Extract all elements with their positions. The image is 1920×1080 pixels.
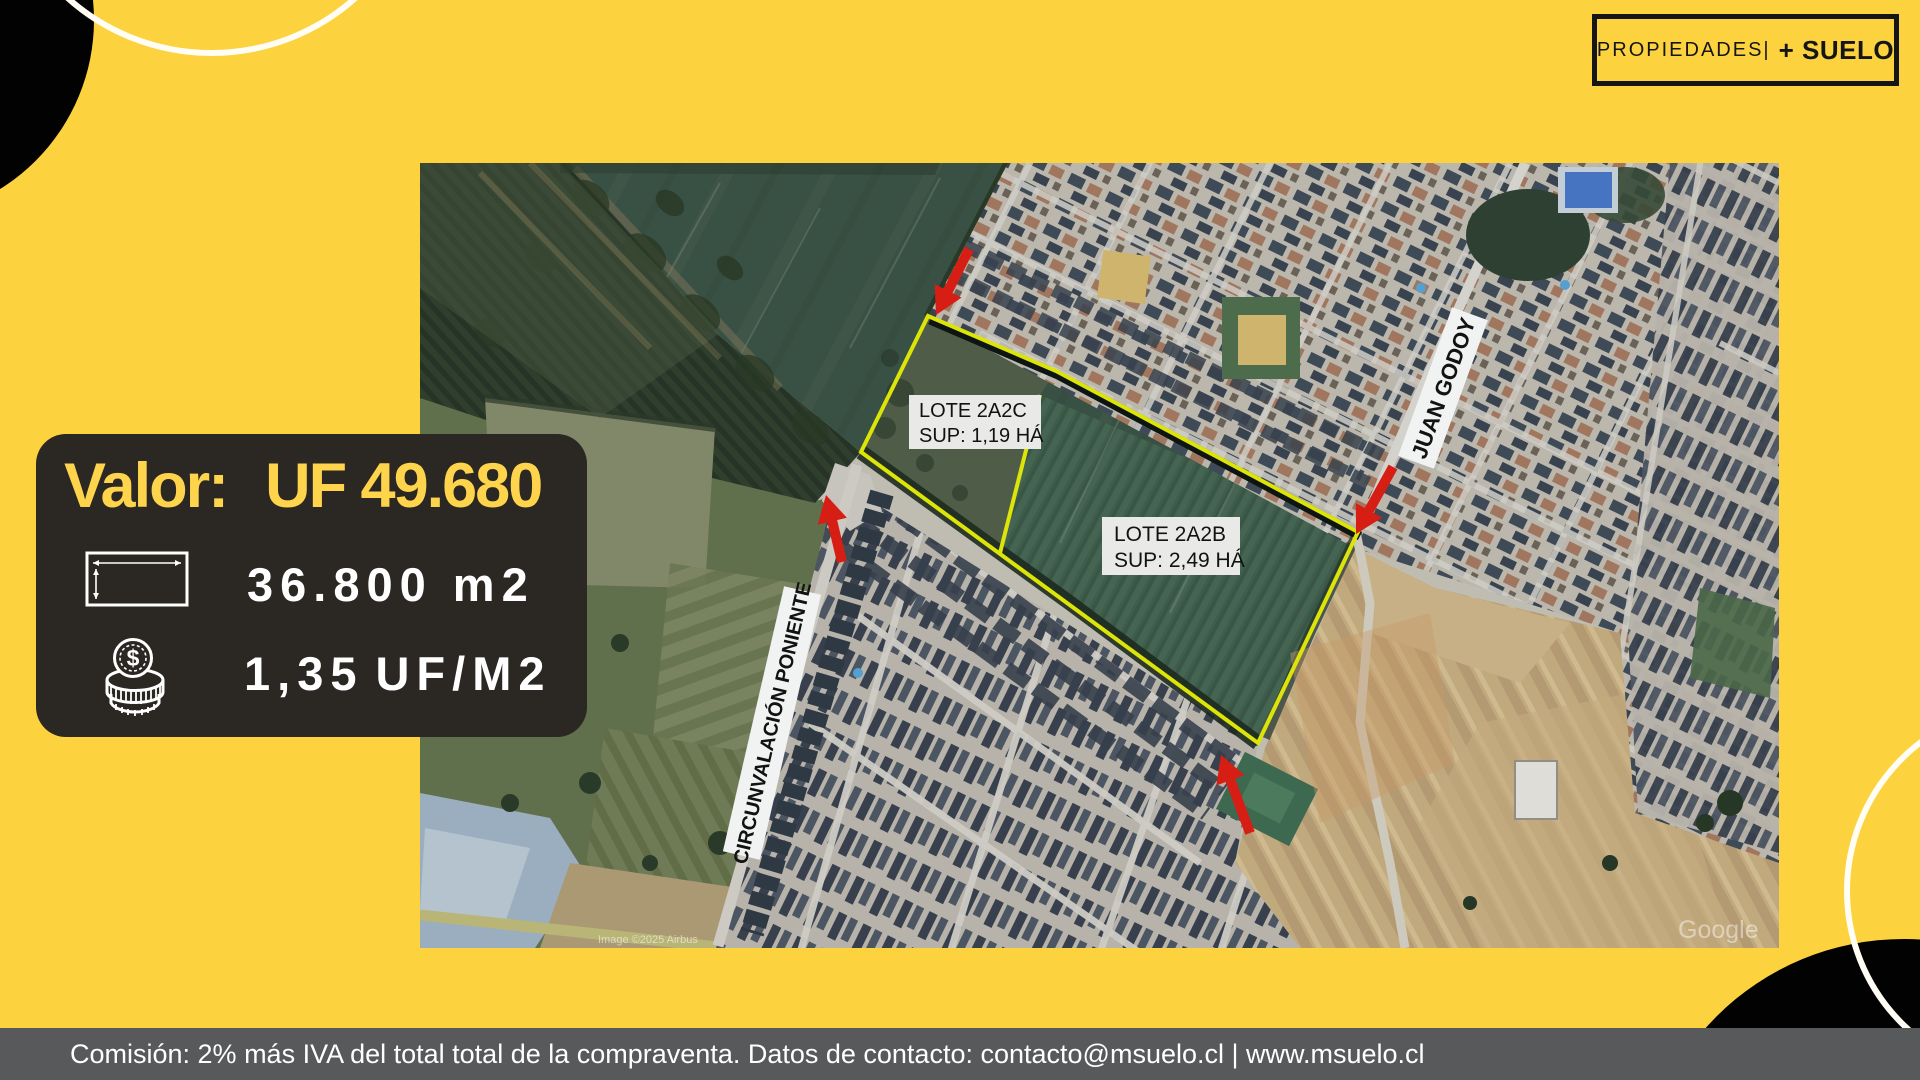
svg-text:Image ©2025 Airbus: Image ©2025 Airbus xyxy=(598,934,698,946)
svg-text:$: $ xyxy=(127,645,140,671)
svg-text:Google: Google xyxy=(1678,916,1759,944)
